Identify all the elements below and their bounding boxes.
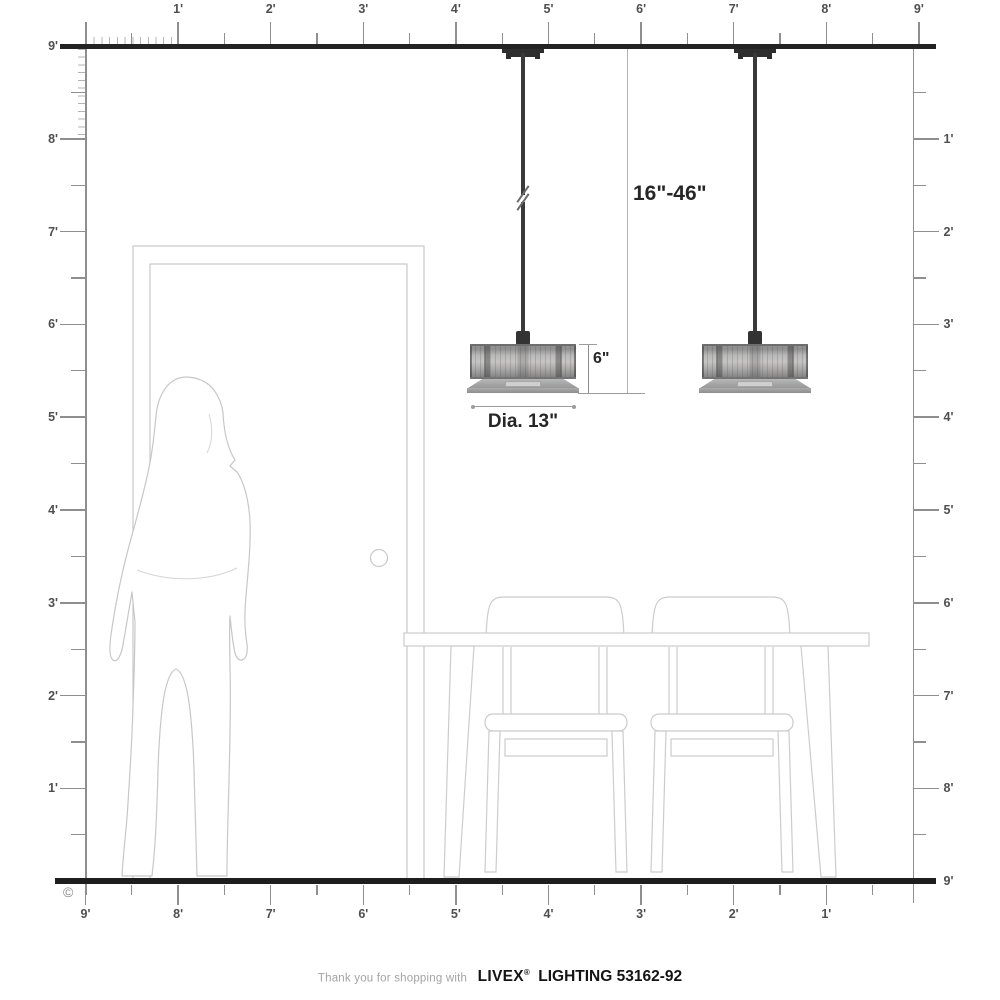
ruler-label: 1' <box>814 906 838 922</box>
ruler-tick <box>913 741 926 742</box>
ruler-tick <box>131 885 132 895</box>
ruler-tick <box>60 695 85 697</box>
dining-table <box>404 633 869 646</box>
ruler-tick <box>913 138 939 140</box>
ruler-tick <box>71 463 85 464</box>
ruler-tick <box>913 324 939 326</box>
ruler-tick <box>60 231 85 233</box>
ruler-label: 6' <box>629 1 653 17</box>
pendant-light-right <box>695 44 815 396</box>
ruler-label: 4' <box>537 906 561 922</box>
ruler-label: 1' <box>944 131 968 147</box>
ruler-tick <box>177 885 179 905</box>
ruler-tick <box>60 602 85 604</box>
canopy-nub <box>738 53 743 59</box>
footer-prefix: Thank you for shopping with <box>318 972 467 984</box>
ruler-label: 7' <box>36 224 58 240</box>
ruler-tick <box>640 22 642 44</box>
ruler-tick <box>913 509 939 511</box>
ruler-tick <box>455 885 457 905</box>
canopy-nub <box>535 53 540 59</box>
ruler-label: 3' <box>36 595 58 611</box>
fixture-base-recess <box>737 381 773 387</box>
ruler-tick <box>71 370 85 371</box>
ruler-tick <box>913 92 926 93</box>
ruler-tick <box>131 33 132 44</box>
ruler-tick <box>548 22 550 44</box>
ruler-tick <box>913 695 939 697</box>
ruler-label: 9' <box>36 38 58 54</box>
ruler-tick <box>826 885 828 905</box>
dimension-label-drop: 16"-46" <box>633 182 707 206</box>
product-dimension-diagram: 16"-46" 6" Dia. 13" 1'2'3'4'5'6'7'8'9'9'… <box>0 0 1000 1000</box>
ruler-tick <box>71 92 85 93</box>
ruler-tick <box>872 885 873 895</box>
ruler-tick <box>733 885 735 905</box>
ruler-tick <box>913 834 926 835</box>
ruler-tick <box>71 185 85 186</box>
ruler-label: 1' <box>166 1 190 17</box>
dimension-label-height: 6" <box>593 350 609 368</box>
ruler-tick <box>913 788 939 790</box>
ruler-tick <box>913 649 926 650</box>
ruler-label: 5' <box>444 906 468 922</box>
pendant-light-left <box>463 44 583 396</box>
ruler-tick <box>85 885 87 905</box>
dimension-baseline <box>578 393 645 394</box>
ruler-tick <box>913 602 939 604</box>
shade-connector <box>748 331 762 345</box>
ruler-tick <box>71 277 85 278</box>
ruler-label: 4' <box>36 502 58 518</box>
ruler-label: 2' <box>36 688 58 704</box>
ruler-tick <box>913 463 926 464</box>
ruler-label: 7' <box>259 906 283 922</box>
ruler-tick <box>687 885 688 895</box>
ruler-label: 2' <box>722 906 746 922</box>
ruler-tick <box>913 277 926 278</box>
ruler-label: 5' <box>537 1 561 17</box>
ruler-tick <box>60 416 85 418</box>
ruler-label: 9' <box>74 906 98 922</box>
product-number: LIGHTING 53162-92 <box>538 968 682 985</box>
hang-rod <box>753 53 757 341</box>
door-knob <box>371 550 388 567</box>
ruler-label: 4' <box>444 1 468 17</box>
ruler-label: 4' <box>944 409 968 425</box>
inch-ticks-left <box>78 49 85 142</box>
ruler-tick <box>224 33 225 44</box>
ruler-tick <box>60 788 85 790</box>
ruler-tick <box>316 885 317 895</box>
ruler-label: 2' <box>944 224 968 240</box>
ruler-tick <box>224 885 225 895</box>
ruler-label: 6' <box>36 316 58 332</box>
chair <box>486 597 790 635</box>
ruler-left-line <box>85 22 87 895</box>
ruler-label: 2' <box>259 1 283 17</box>
ruler-label: 8' <box>166 906 190 922</box>
ceiling-line <box>60 44 936 49</box>
ruler-tick <box>177 22 179 44</box>
ruler-label: 3' <box>351 1 375 17</box>
ruler-label: 6' <box>351 906 375 922</box>
fixture-base-recess <box>505 381 541 387</box>
ruler-tick <box>71 834 85 835</box>
ruler-tick <box>71 649 85 650</box>
ruler-tick <box>71 556 85 557</box>
ruler-tick <box>409 33 410 44</box>
ruler-tick <box>913 416 939 418</box>
ruler-tick <box>733 22 735 44</box>
ruler-tick <box>918 22 920 44</box>
ruler-tick <box>60 509 85 511</box>
ruler-label: 9' <box>944 873 968 889</box>
dimension-line-diameter <box>473 406 574 407</box>
ruler-tick <box>455 22 457 44</box>
ruler-tick <box>640 885 642 905</box>
ruler-tick <box>60 138 85 140</box>
ruler-tick <box>363 22 365 44</box>
ruler-tick <box>913 185 926 186</box>
floor-line <box>55 878 936 884</box>
ruler-label: 5' <box>944 502 968 518</box>
ruler-label: 3' <box>629 906 653 922</box>
ruler-label: 7' <box>722 1 746 17</box>
ruler-tick <box>913 231 939 233</box>
drum-shade <box>470 344 576 379</box>
brand-name: LIVEX <box>478 968 524 985</box>
ruler-label: 8' <box>36 131 58 147</box>
dimension-label-diameter: Dia. 13" <box>458 411 588 433</box>
shade-connector <box>516 331 530 345</box>
ruler-label: 7' <box>944 688 968 704</box>
ruler-label: 8' <box>944 780 968 796</box>
ruler-tick <box>270 885 272 905</box>
ruler-right-line <box>913 46 915 903</box>
ruler-tick <box>60 324 85 326</box>
fixture-bottom-plate <box>699 388 811 393</box>
ruler-tick <box>872 33 873 44</box>
canopy-nub <box>506 53 511 59</box>
ruler-label: 3' <box>944 316 968 332</box>
ruler-tick <box>779 885 780 895</box>
ruler-label: 9' <box>907 1 931 17</box>
dimension-endpoint <box>572 405 576 409</box>
ruler-tick <box>779 33 780 44</box>
ruler-label: 1' <box>36 780 58 796</box>
ruler-tick <box>687 33 688 44</box>
ruler-tick <box>548 885 550 905</box>
dimension-endpoint <box>471 405 475 409</box>
ruler-label: 8' <box>814 1 838 17</box>
registered-mark: ® <box>524 968 530 977</box>
chair <box>485 647 793 872</box>
ruler-tick <box>502 33 503 44</box>
ruler-label: 6' <box>944 595 968 611</box>
dimension-line-height <box>588 345 589 393</box>
ruler-tick <box>913 370 926 371</box>
copyright-symbol: © <box>63 884 73 900</box>
ruler-tick <box>913 556 926 557</box>
ruler-tick <box>71 741 85 742</box>
person-silhouette <box>110 377 250 876</box>
canopy-nub <box>767 53 772 59</box>
dimension-tick-top <box>579 344 597 345</box>
ruler-tick <box>594 33 595 44</box>
fixture-bottom-plate <box>467 388 579 393</box>
drum-shade <box>702 344 808 379</box>
ruler-label: 5' <box>36 409 58 425</box>
ruler-tick <box>270 22 272 44</box>
ruler-tick <box>316 33 317 44</box>
ruler-tick <box>502 885 503 895</box>
footer-caption: Thank you for shopping with LIVEX® LIGHT… <box>0 968 1000 986</box>
ruler-tick <box>826 22 828 44</box>
ruler-tick <box>409 885 410 895</box>
dimension-line-drop <box>627 49 628 393</box>
ruler-tick <box>363 885 365 905</box>
ruler-tick <box>594 885 595 895</box>
